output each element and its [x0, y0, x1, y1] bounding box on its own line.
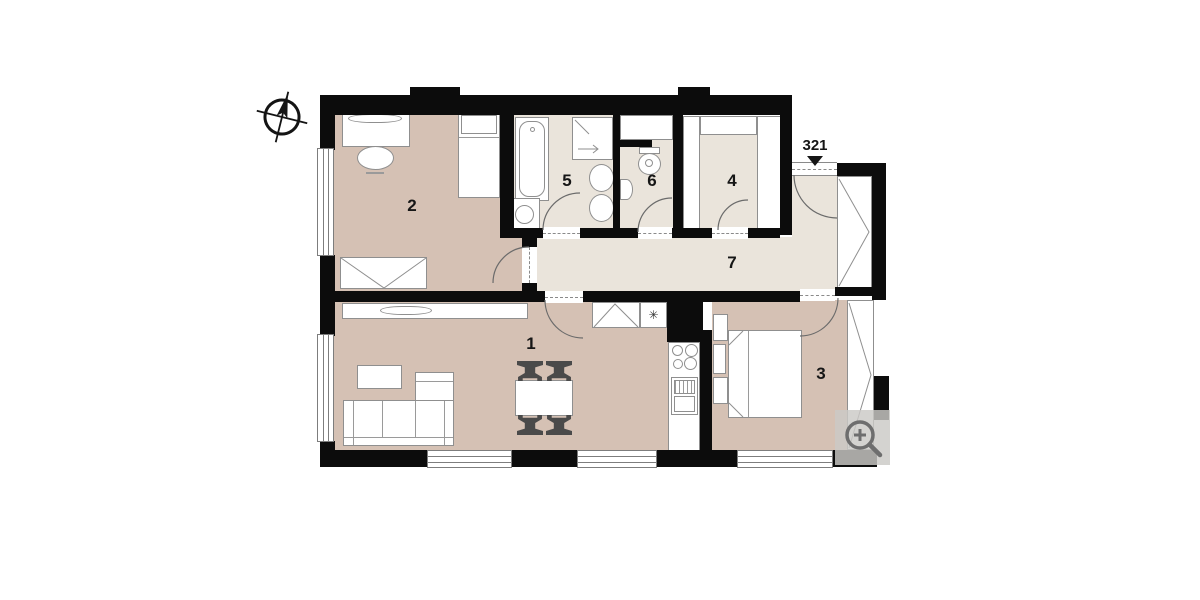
sink — [589, 164, 614, 192]
wall-segment — [613, 113, 620, 235]
wall-segment — [667, 291, 703, 342]
door-opening-bedroom3 — [800, 289, 835, 301]
nightstand — [713, 314, 728, 341]
washing-machine-drum — [515, 205, 534, 224]
closet-cabinet — [700, 116, 757, 135]
laptop — [348, 114, 402, 123]
coffee-table — [357, 365, 402, 389]
fridge-symbol: ✳ — [648, 308, 658, 322]
hand-basin — [620, 179, 633, 200]
desk-chair — [357, 146, 394, 170]
wall-segment — [673, 113, 683, 235]
wall-segment — [500, 113, 514, 235]
window — [577, 450, 657, 468]
wall-segment — [320, 95, 792, 115]
zoom-in-button[interactable] — [835, 410, 890, 465]
wall-segment — [837, 163, 872, 176]
hall-closet — [592, 302, 640, 328]
cooktop-burner — [685, 344, 698, 357]
wall-segment — [580, 228, 638, 238]
wall-segment — [748, 228, 780, 238]
tv — [380, 306, 432, 315]
wall-segment — [320, 255, 335, 336]
window — [737, 450, 833, 468]
sofa-base — [343, 400, 454, 446]
wall-segment — [334, 291, 545, 302]
wall-segment — [620, 140, 652, 147]
room-label-3: 3 — [809, 363, 833, 385]
wall-segment — [522, 235, 537, 247]
room-label-5: 5 — [555, 170, 579, 192]
wall-segment — [678, 87, 710, 96]
entry-wardrobe — [837, 176, 872, 288]
sideboard — [342, 303, 528, 319]
pillow — [461, 115, 497, 134]
floor-room-2-nib — [498, 235, 523, 292]
wardrobe — [340, 257, 427, 289]
sofa-chaise-line — [416, 381, 453, 382]
wall-segment — [410, 87, 460, 96]
door-opening-bathroom — [543, 227, 580, 239]
headboard — [713, 344, 726, 374]
window — [317, 334, 334, 442]
cooktop-burner — [684, 357, 697, 370]
bathtub-basin — [519, 121, 545, 197]
sofa-armrest-line — [444, 401, 445, 445]
wall-segment — [672, 228, 712, 238]
wall-segment — [320, 95, 335, 150]
sofa-back-line — [344, 437, 453, 438]
bed-line — [748, 331, 749, 417]
door-opening-living — [545, 291, 583, 303]
cooktop-burner — [672, 345, 683, 356]
desk-chair-base — [366, 172, 384, 174]
door-opening-wc — [638, 227, 672, 239]
sink — [589, 194, 614, 222]
room-label-2: 2 — [400, 195, 424, 217]
shower — [572, 117, 613, 160]
toilet-drain — [645, 159, 653, 167]
compass-rose-icon — [253, 88, 311, 146]
wall-segment — [780, 113, 792, 235]
floor-plan-viewer: ✳ — [0, 0, 1200, 600]
room-label-7: 7 — [720, 252, 744, 274]
window — [317, 148, 334, 256]
wall-segment — [872, 163, 886, 300]
entrance-arrow-icon — [807, 156, 823, 166]
room-label-4: 4 — [720, 170, 744, 192]
nightstand — [713, 377, 728, 404]
shaft — [620, 115, 673, 140]
room-label-6: 6 — [640, 170, 664, 192]
wall-segment — [835, 287, 877, 296]
sofa-cushion-line — [382, 401, 383, 437]
sofa-armrest-line — [353, 401, 354, 445]
bathtub-drain — [530, 127, 535, 132]
blanket-line — [459, 137, 499, 138]
sink-drainboard — [674, 380, 695, 394]
double-bed — [728, 330, 802, 418]
door-opening-closet — [712, 227, 748, 239]
closet-cabinet — [683, 116, 700, 234]
window — [427, 450, 512, 468]
wall-segment — [320, 450, 427, 467]
magnifier-plus-icon — [839, 414, 887, 462]
sofa-cushion-line — [415, 401, 416, 437]
wall-segment — [512, 450, 577, 467]
door-opening-bedroom2 — [522, 247, 535, 283]
sink-basin — [674, 396, 695, 412]
wall-segment — [700, 330, 712, 452]
entrance-unit-label: 321 — [793, 137, 837, 154]
fridge: ✳ — [640, 302, 667, 328]
wall-segment — [657, 450, 737, 467]
room-label-1: 1 — [519, 333, 543, 355]
dining-table — [515, 380, 573, 416]
cooktop-burner — [673, 359, 683, 369]
